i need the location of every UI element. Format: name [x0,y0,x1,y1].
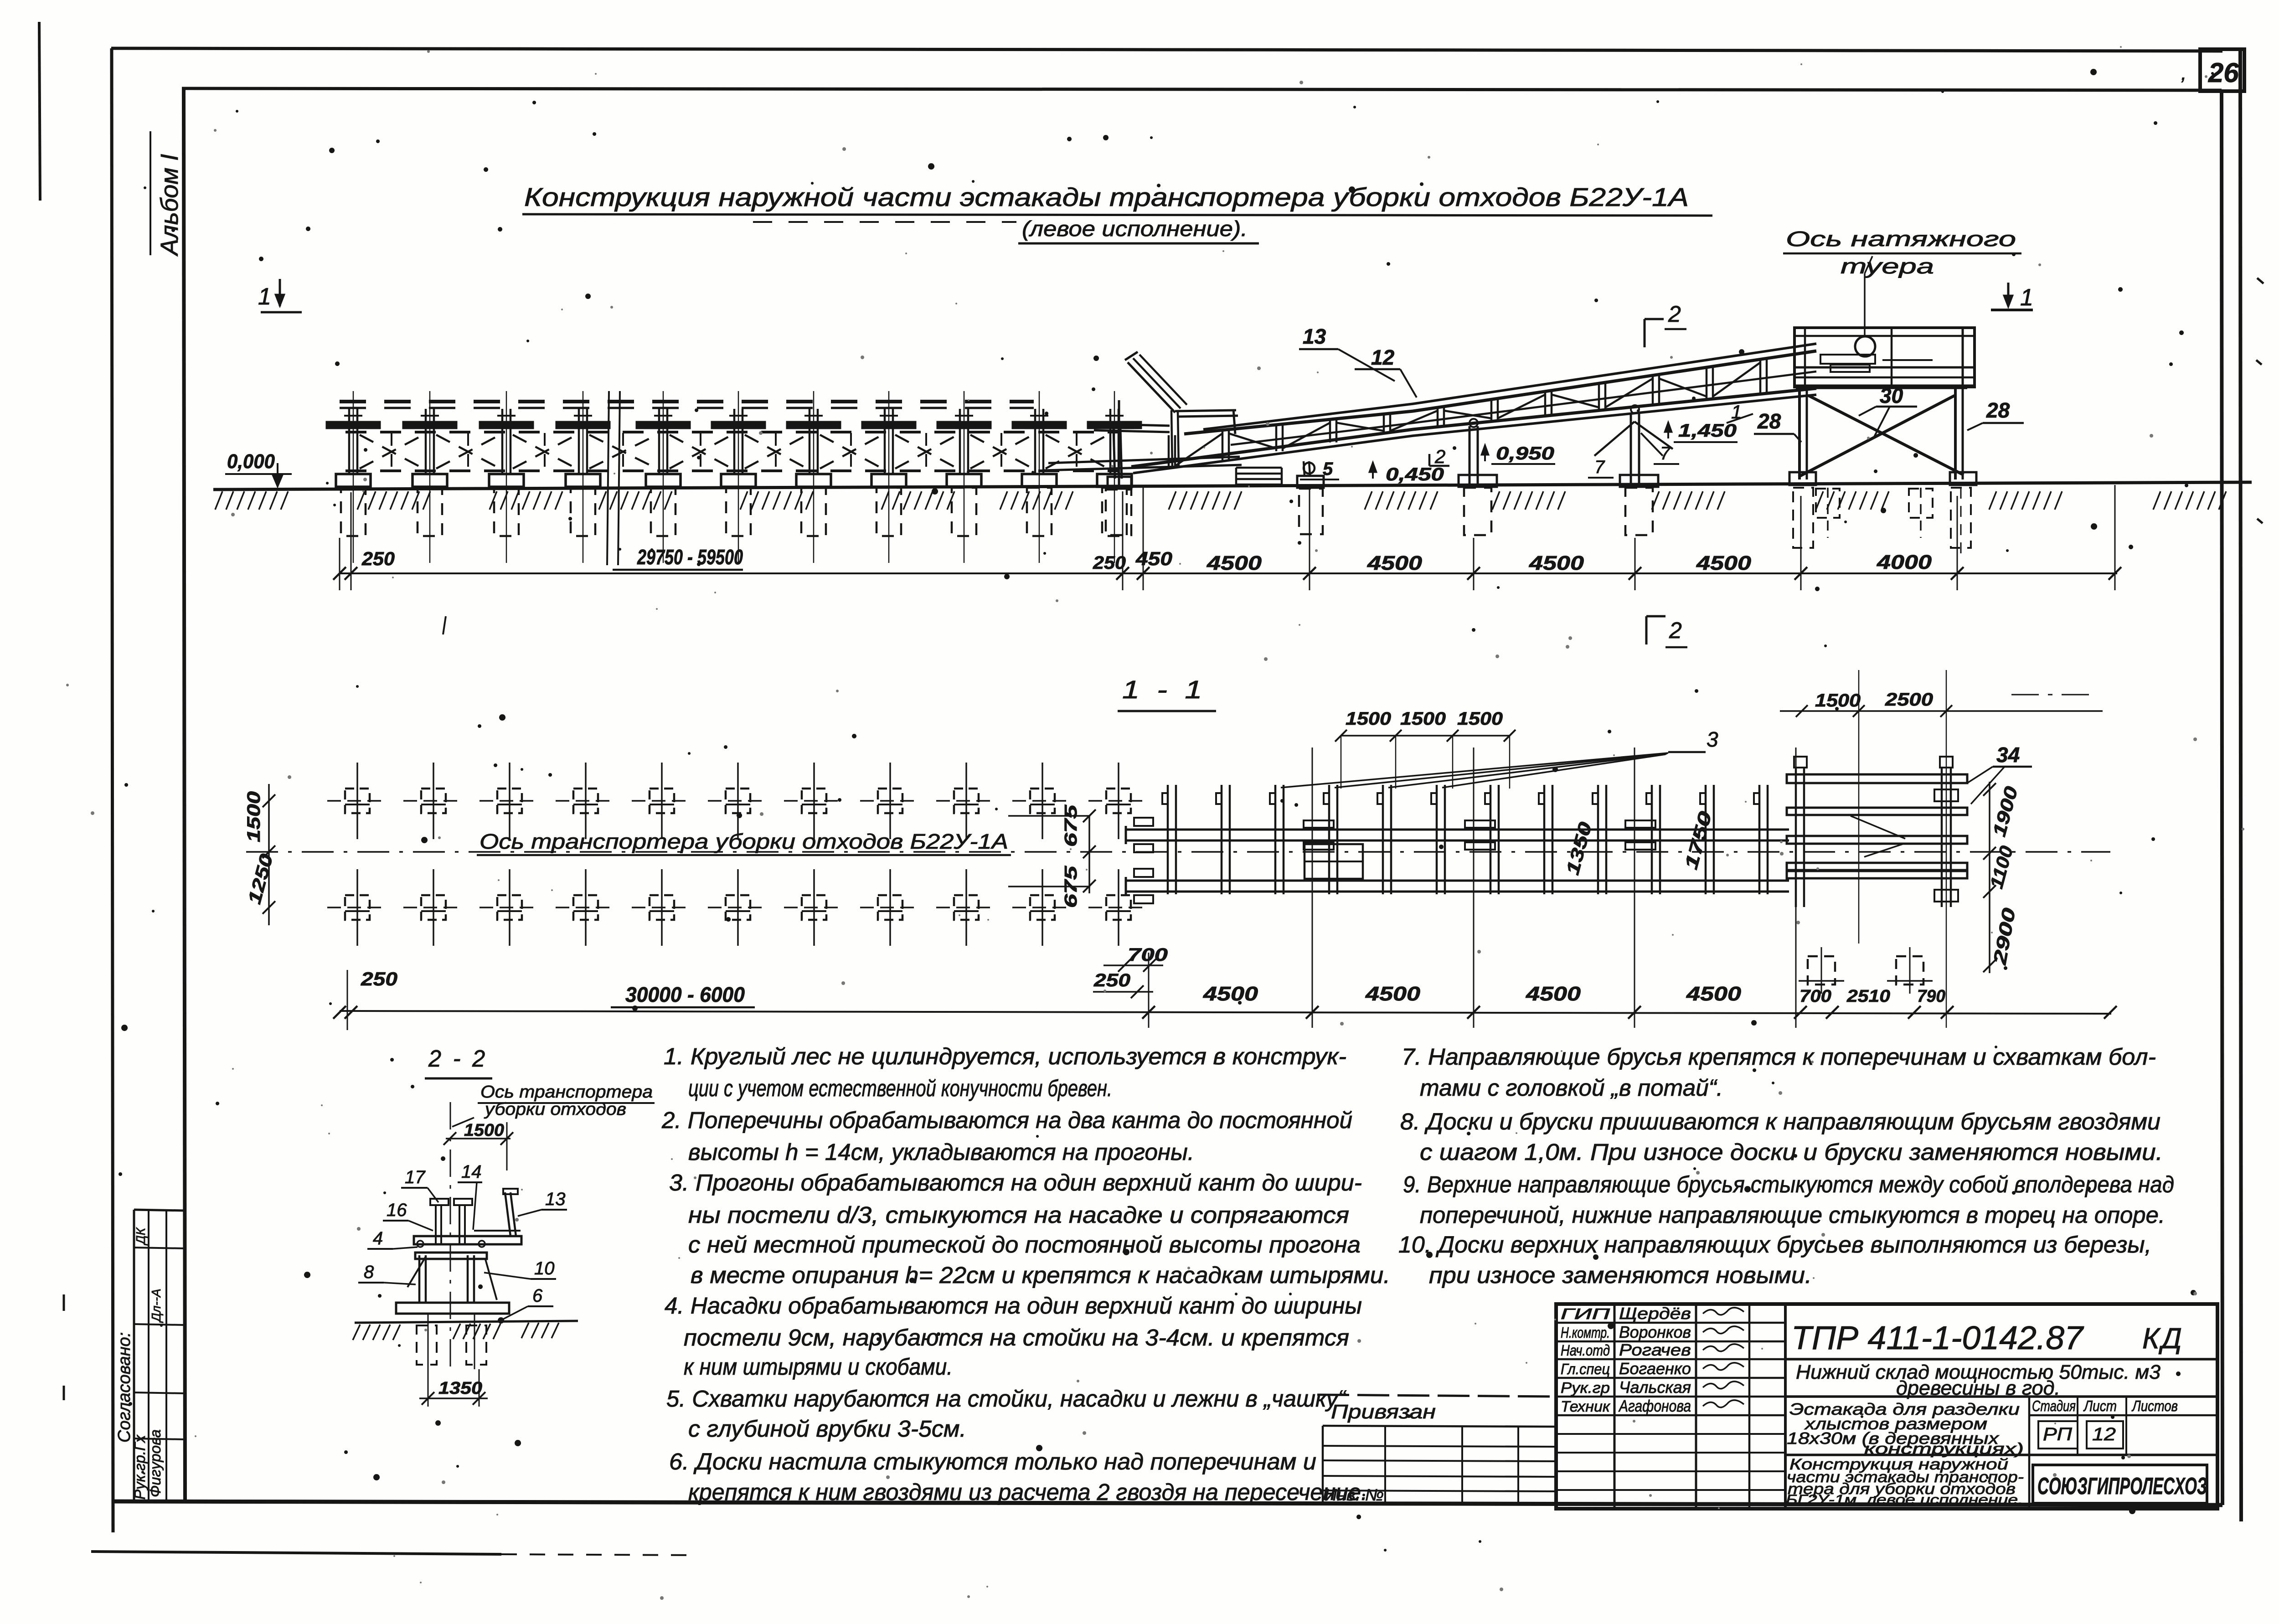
svg-text:СОЮЗГИПРОЛЕСХОЗ: СОЮЗГИПРОЛЕСХОЗ [2037,1473,2207,1500]
svg-text:1500: 1500 [1457,709,1503,729]
svg-text:450: 450 [1135,548,1172,569]
svg-text:6. Доски настила стыкуются: 6. Доски настила стыкуются только над по… [669,1449,1316,1474]
svg-text:1: 1 [2020,284,2033,311]
svg-text:13: 13 [1303,325,1326,348]
svg-text:ции с учетом естественной кону: ции с учетом естественной конучности бре… [688,1075,1112,1101]
svg-text:ДК: ДК [134,1227,148,1246]
svg-text:13: 13 [545,1189,566,1209]
svg-text:1350: 1350 [438,1379,482,1398]
svg-text:1. Круглый лес не цилиндруется: 1. Круглый лес не цилиндруется, использу… [664,1043,1346,1069]
svg-text:2. Поперечины обрабатываются н: 2. Поперечины обрабатываются на два кант… [661,1107,1352,1133]
svg-text:4500: 4500 [1696,552,1752,574]
svg-text:при износе заменяются новым: при износе заменяются новыми. [1429,1262,1812,1288]
svg-text:Воронков: Воронков [1619,1323,1691,1341]
svg-text:с шагом 1,0м. При износе д: с шагом 1,0м. При износе доски и бруски … [1420,1139,2163,1165]
svg-text:2: 2 [1669,618,1682,643]
svg-text:0,450: 0,450 [1386,464,1444,485]
svg-text:Рогачев: Рогачев [1619,1340,1691,1359]
svg-text:1900: 1900 [1989,784,2021,839]
svg-text:Н.комтр.: Н.комтр. [1561,1324,1610,1341]
svg-text:Чальская: Чальская [1619,1378,1691,1397]
svg-text:0,000: 0,000 [227,450,275,473]
svg-text:конструкциях): конструкциях) [1864,1440,2024,1458]
svg-text:7: 7 [1594,457,1605,477]
svg-text:1500: 1500 [464,1121,504,1140]
svg-text:2 - 2: 2 - 2 [428,1046,488,1072]
svg-text:Стадия: Стадия [2032,1397,2076,1414]
svg-text:1500: 1500 [1400,709,1446,729]
svg-text:0,950: 0,950 [1496,443,1554,464]
svg-text:17: 17 [405,1167,426,1187]
svg-text:34: 34 [1996,743,2020,767]
svg-text:1500: 1500 [244,791,264,842]
svg-text:250: 250 [1093,553,1126,573]
svg-text:4500: 4500 [1686,983,1742,1005]
svg-text:Инв. №: Инв. № [1325,1485,1384,1504]
svg-text:30: 30 [1880,384,1903,407]
svg-text:7. Направляющие брусья крепя: 7. Направляющие брусья крепятся к попере… [1402,1044,2156,1070]
svg-text:2: 2 [1668,301,1681,327]
svg-text:4500: 4500 [1529,552,1584,574]
svg-text:Рук.гр: Рук.гр [1561,1379,1610,1396]
svg-text:,: , [2181,62,2186,84]
svg-text:675: 675 [1062,804,1081,847]
svg-text:крепятся к ним гвоздями из: крепятся к ним гвоздями из расчета 2 гво… [688,1479,1367,1505]
svg-text:12: 12 [2092,1424,2116,1444]
svg-text:Лист: Лист [2083,1397,2117,1414]
svg-text:тами с головкой „в потай“.: тами с головкой „в потай“. [1420,1075,1723,1101]
svg-text:к ним штырями и скобами.: к ним штырями и скобами. [684,1354,953,1380]
svg-text:2: 2 [1434,446,1445,467]
svg-text:700: 700 [1128,945,1168,965]
svg-text:250: 250 [361,968,397,990]
svg-text:29750 - 59500: 29750 - 59500 [637,545,743,569]
svg-text:Ось натяжного: Ось натяжного [1786,227,2016,251]
svg-text:12: 12 [1371,345,1395,369]
svg-text:1250: 1250 [244,852,277,907]
svg-text:постели 9см, нарубаются на ст: постели 9см, нарубаются на стойки на 3-4… [684,1325,1349,1351]
svg-text:Привязан: Привязан [1331,1401,1436,1423]
svg-text:в месте опирания h= 22см и: в месте опирания h= 22см и крепятся к на… [691,1262,1390,1288]
svg-text:Дл--А: Дл--А [149,1289,163,1323]
svg-text:Ось транспортера: Ось транспортера [480,1083,653,1102]
svg-text:Фигурова: Фигурова [147,1429,164,1497]
svg-text:поперечиной, нижние направля: поперечиной, нижние направляющие стыкуют… [1420,1202,2165,1228]
svg-text:Ось транспортера уборки отходо: Ось транспортера уборки отходов Б22У-1А [480,830,1008,853]
svg-text:Щердёв: Щердёв [1619,1304,1691,1323]
svg-text:2510: 2510 [1846,987,1890,1006]
svg-text:28: 28 [1757,409,1781,433]
svg-text:250: 250 [361,548,395,569]
svg-text:4: 4 [373,1228,383,1248]
svg-text:4500: 4500 [1526,983,1581,1005]
svg-text:28: 28 [1986,398,2010,422]
svg-text:1500: 1500 [1346,709,1391,729]
svg-text:4500: 4500 [1203,983,1258,1005]
svg-text:790: 790 [1917,987,1945,1006]
svg-text:Агафонова: Агафонова [1618,1397,1691,1415]
svg-text:700: 700 [1799,987,1831,1006]
svg-text:древесины в год.: древесины в год. [1896,1377,2060,1399]
svg-text:КД: КД [2142,1322,2184,1355]
svg-text:Листов: Листов [2131,1397,2178,1414]
svg-text:Рук.гр.Гх: Рук.гр.Гх [131,1434,148,1500]
svg-text:4000: 4000 [1877,551,1932,573]
svg-text:10: 10 [534,1258,555,1279]
svg-text:30000 - 6000: 30000 - 6000 [625,983,745,1006]
svg-text:3: 3 [1707,727,1718,751]
svg-text:1: 1 [258,284,271,310]
svg-text:6: 6 [532,1286,543,1306]
svg-text:Богаенко: Богаенко [1619,1359,1691,1378]
svg-text:5. Схватки нарубаются на сто: 5. Схватки нарубаются на стойки, насадки… [666,1386,1347,1412]
svg-text:4500: 4500 [1365,983,1421,1005]
svg-text:9. Верхние направляющие брус: 9. Верхние направляющие брусья стыкуются… [1403,1171,2174,1197]
svg-text:3. Прогоны обрабатываются на: 3. Прогоны обрабатываются на один верхни… [669,1170,1362,1196]
svg-text:250: 250 [1093,970,1130,990]
svg-text:4. Насадки обрабатываются на: 4. Насадки обрабатываются на один верхни… [665,1293,1362,1319]
svg-text:8. Доски и бруски пришивают: 8. Доски и бруски пришиваются к направля… [1400,1108,2160,1134]
svg-text:ТПР 411-1-0142.87: ТПР 411-1-0142.87 [1791,1320,2084,1356]
svg-text:Нач.отд: Нач.отд [1561,1342,1610,1359]
svg-text:4500: 4500 [1367,552,1423,574]
svg-text:Альбом I: Альбом I [156,154,183,257]
svg-text:675: 675 [1062,866,1081,908]
svg-text:8: 8 [364,1262,374,1282]
svg-text:4500: 4500 [1207,552,1262,574]
svg-text:с ней местной притеской до: с ней местной притеской до постоянной вы… [688,1232,1361,1258]
svg-text:с глубиной врубки 3-5см.: с глубиной врубки 3-5см. [688,1416,966,1442]
svg-text:1,450: 1,450 [1678,421,1737,441]
svg-text:10. Доски верхних направляющ: 10. Доски верхних направляющих брусьев в… [1398,1232,2151,1258]
svg-text:Конструкция наружной части эст: Конструкция наружной части эстакады тран… [524,183,1689,212]
svg-text:14: 14 [461,1162,482,1182]
svg-text:ГИП: ГИП [1561,1305,1610,1322]
svg-text:РП: РП [2043,1424,2073,1444]
svg-text:16: 16 [387,1200,407,1220]
svg-text:Согласовано:: Согласовано: [115,1332,134,1443]
svg-text:1 - 1: 1 - 1 [1122,675,1207,704]
svg-text:БГ2У-1м. левое исполнение,: БГ2У-1м. левое исполнение, [1786,1492,2023,1507]
svg-text:туера: туера [1841,254,1934,278]
svg-text:2900: 2900 [1990,907,2019,967]
svg-text:(левое исполнение).: (левое исполнение). [1022,217,1248,241]
svg-text:высоты h = 14см, укладываютс: высоты h = 14см, укладываются на прогоны… [688,1139,1194,1165]
svg-text:Гл.спец: Гл.спец [1561,1361,1610,1377]
svg-text:2500: 2500 [1885,690,1933,710]
svg-text:Техник: Техник [1561,1398,1610,1415]
svg-text:уборки отходов: уборки отходов [484,1100,626,1119]
svg-text:ны постели d/3, стыкуются: ны постели d/3, стыкуются на насадке и с… [688,1202,1349,1228]
